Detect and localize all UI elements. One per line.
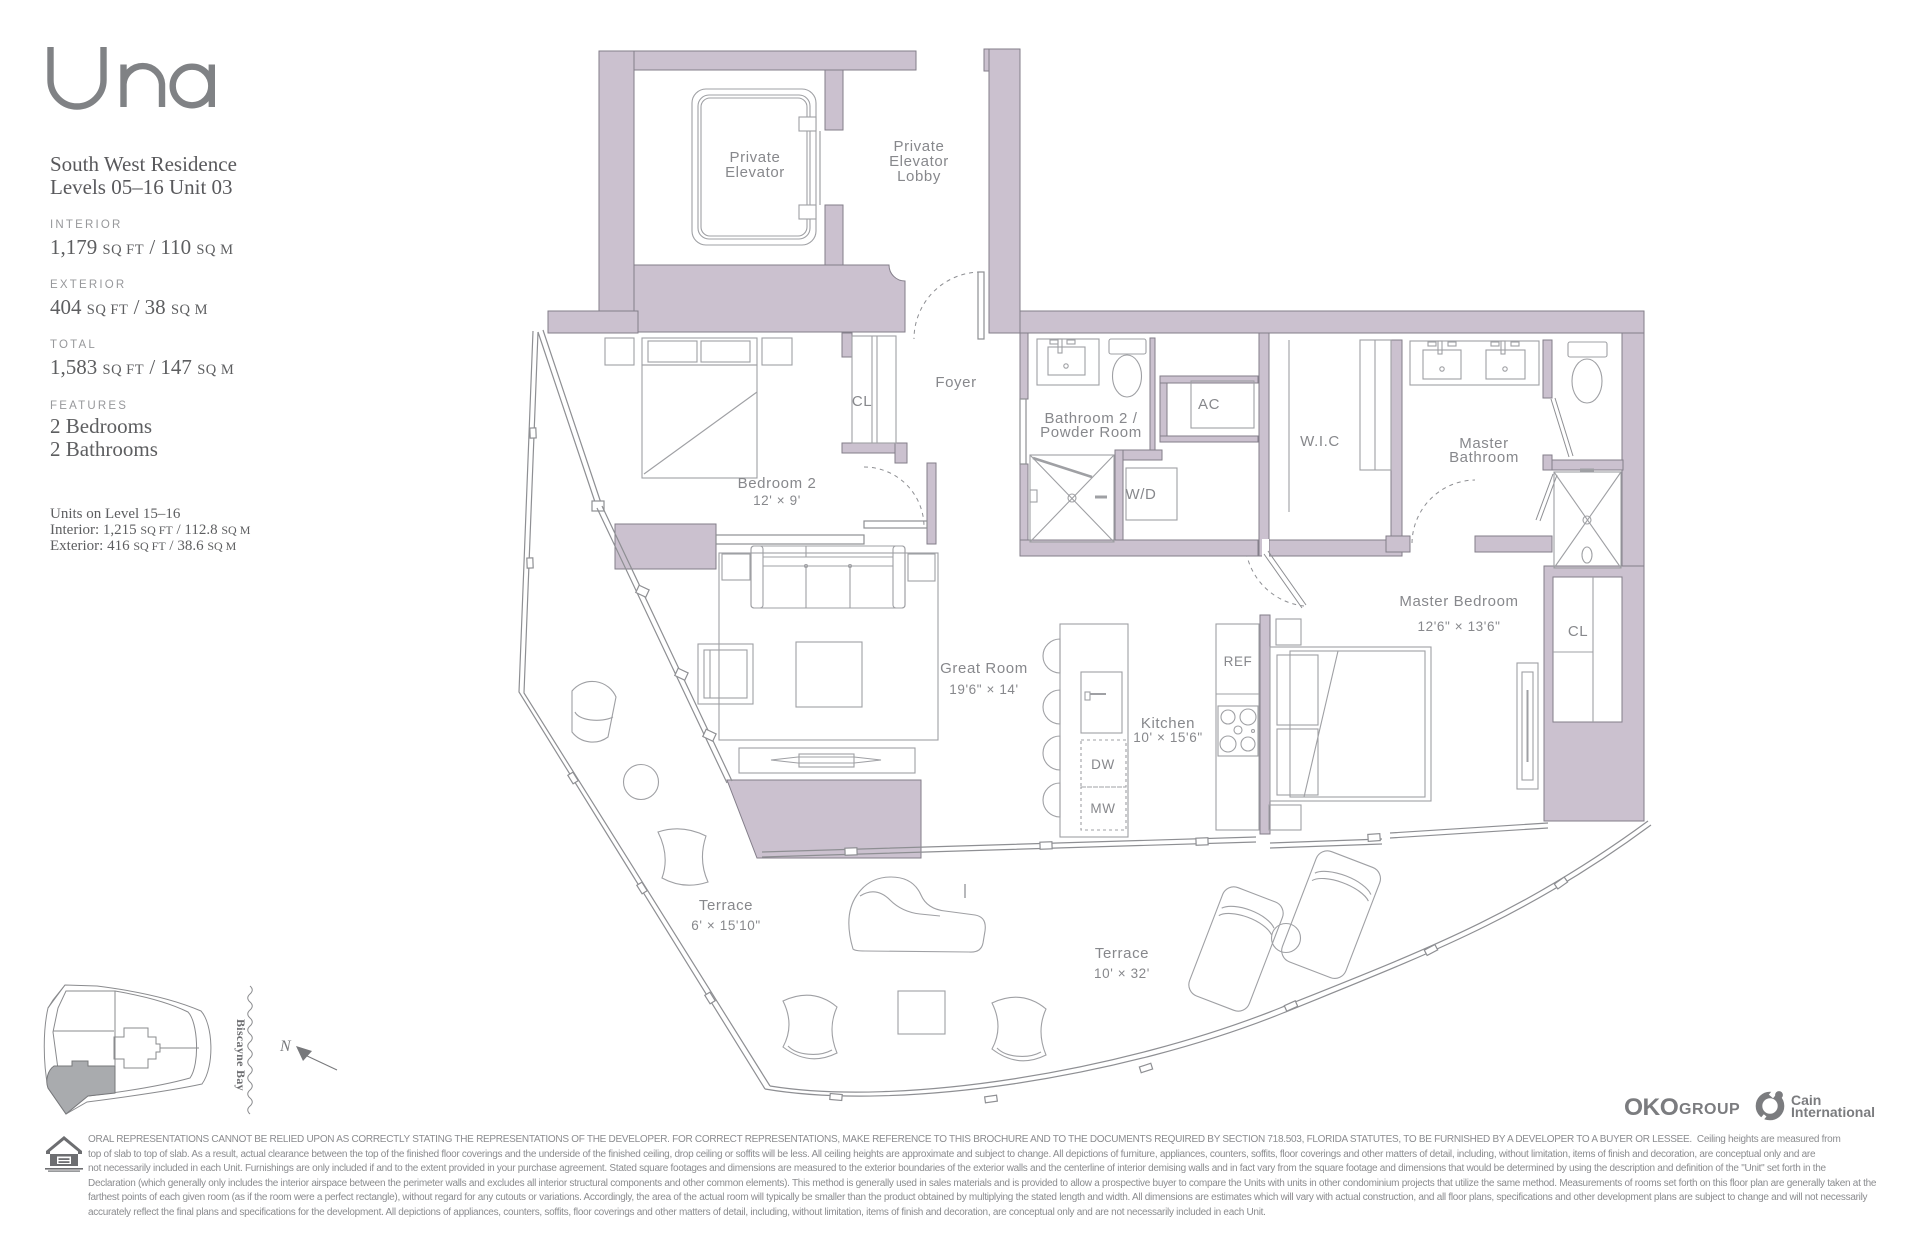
svg-text:12' × 9': 12' × 9'	[753, 493, 801, 508]
svg-text:Elevator: Elevator	[725, 164, 785, 181]
svg-text:W.I.C: W.I.C	[1300, 433, 1340, 450]
svg-text:W/D: W/D	[1126, 486, 1157, 503]
svg-text:19'6" × 14': 19'6" × 14'	[949, 682, 1018, 697]
svg-text:10' × 15'6": 10' × 15'6"	[1133, 730, 1202, 745]
svg-text:CL: CL	[1568, 623, 1588, 640]
svg-text:GROUP: GROUP	[1679, 1101, 1740, 1118]
svg-text:Terrace: Terrace	[699, 897, 753, 914]
svg-text:Biscayne Bay: Biscayne Bay	[234, 1019, 248, 1091]
svg-text:OKO: OKO	[1624, 1094, 1679, 1121]
svg-text:6' × 15'10": 6' × 15'10"	[691, 918, 760, 933]
svg-text:REF: REF	[1224, 654, 1253, 669]
svg-text:International: International	[1791, 1104, 1875, 1120]
svg-text:Master Bedroom: Master Bedroom	[1399, 593, 1518, 610]
svg-text:MW: MW	[1090, 801, 1115, 816]
svg-text:CL: CL	[852, 393, 872, 410]
svg-text:Powder Room: Powder Room	[1040, 424, 1142, 441]
svg-text:Great Room: Great Room	[940, 660, 1028, 677]
svg-text:AC: AC	[1198, 396, 1220, 413]
svg-text:12'6" × 13'6": 12'6" × 13'6"	[1418, 619, 1501, 634]
svg-text:Terrace: Terrace	[1095, 945, 1149, 962]
svg-text:Foyer: Foyer	[935, 374, 976, 391]
svg-text:DW: DW	[1091, 757, 1115, 772]
svg-text:10' × 32': 10' × 32'	[1094, 966, 1150, 981]
svg-text:N: N	[279, 1038, 292, 1055]
svg-text:Bedroom 2: Bedroom 2	[738, 475, 817, 492]
svg-text:Bathroom: Bathroom	[1449, 449, 1519, 466]
svg-text:Lobby: Lobby	[897, 168, 941, 185]
